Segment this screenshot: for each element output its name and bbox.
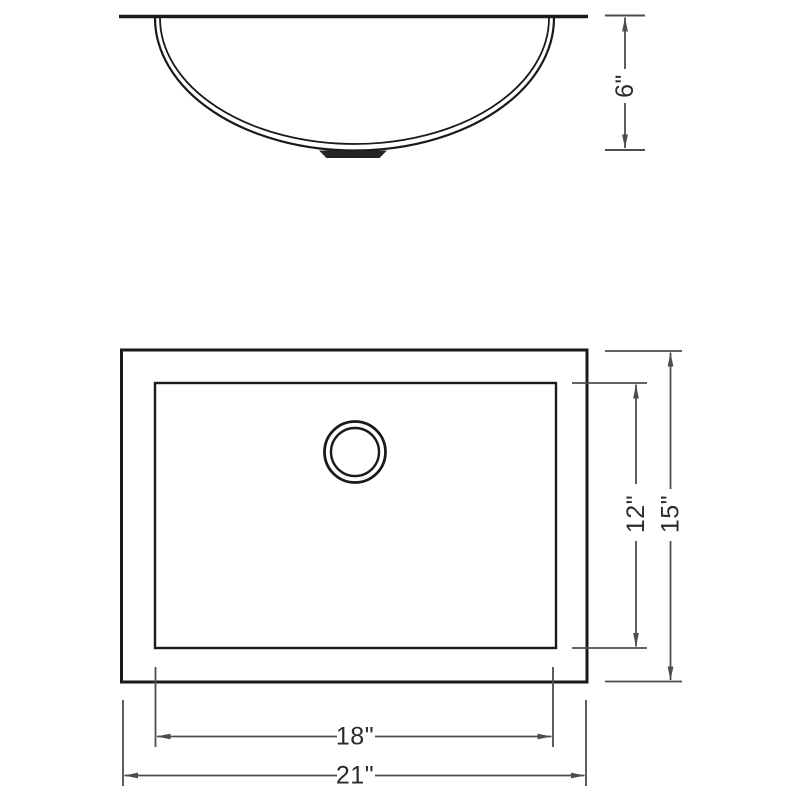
arrow-down-icon xyxy=(668,667,674,681)
arrow-up-icon xyxy=(633,385,639,399)
depth-dimension: 6" xyxy=(605,16,645,151)
overall-length-dimension-label: 21" xyxy=(336,762,374,790)
arrow-right-icon xyxy=(538,734,552,740)
front-elevation-view: 6" xyxy=(119,16,645,159)
arrow-up-icon xyxy=(622,18,628,32)
plan-view: 12" 15" 18" xyxy=(122,350,685,790)
sink-dimension-drawing: 6" 12" xyxy=(0,0,800,800)
basin-length-dimension-label: 18" xyxy=(336,723,374,751)
drain-outer-circle xyxy=(325,422,386,483)
sink-bowl-inner-curve xyxy=(160,18,549,144)
drain-flange xyxy=(319,151,387,159)
basin-width-dimension-label: 12" xyxy=(622,495,650,533)
arrow-down-icon xyxy=(622,135,628,149)
arrow-right-icon xyxy=(571,773,585,779)
arrow-up-icon xyxy=(668,353,674,367)
sink-bowl-outer-curve xyxy=(155,18,554,150)
sink-outer-rim-outline xyxy=(122,350,588,682)
arrow-left-icon xyxy=(157,734,171,740)
depth-dimension-label: 6" xyxy=(611,74,639,98)
drawing-svg: 6" 12" xyxy=(0,0,800,800)
arrow-down-icon xyxy=(633,633,639,647)
basin-width-dimension: 12" xyxy=(572,383,650,648)
arrow-left-icon xyxy=(124,773,138,779)
drain-inner-circle xyxy=(331,428,379,476)
basin-length-dimension: 18" xyxy=(156,667,554,751)
overall-width-dimension-label: 15" xyxy=(657,495,685,533)
